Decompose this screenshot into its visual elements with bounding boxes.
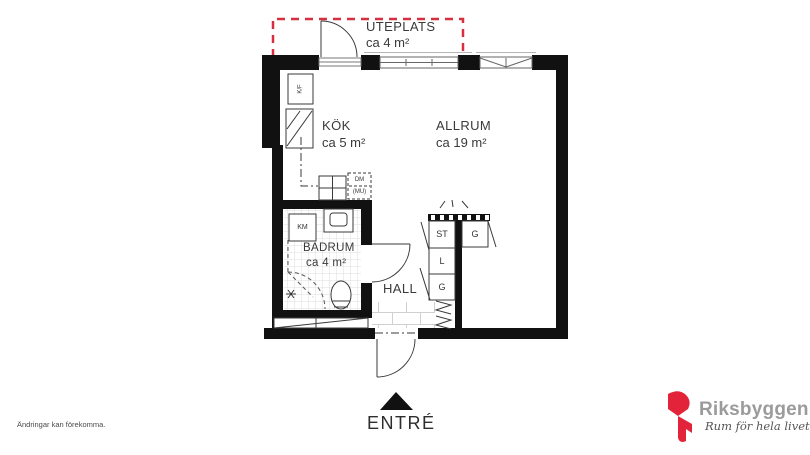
sink-basin	[330, 213, 347, 226]
closet-label-g-right: G	[462, 221, 488, 247]
bathroom-door-swing-arc	[372, 244, 410, 282]
closet-label-l: L	[429, 248, 455, 274]
wall-right	[556, 55, 568, 339]
disclaimer-text: Ändringar kan förekomma.	[17, 421, 105, 429]
balcony-door	[319, 21, 361, 66]
fixture-label-dishwasher: DM	[348, 174, 371, 186]
entrance-arrow-icon	[380, 392, 413, 410]
floorplan-page: UTEPLATS ca 4 m² KÖK ca 5 m² ALLRUM ca 1…	[0, 0, 810, 455]
windows	[364, 53, 536, 69]
closet-door-ajar-1	[421, 222, 429, 250]
fixture-label-fridge-freezer: K/F	[286, 77, 316, 102]
wall-kitchen-bathroom	[272, 200, 372, 209]
riksbyggen-logo-icon	[668, 391, 692, 442]
entry-door-swing-arc	[377, 339, 415, 377]
wall-bottom-left	[264, 328, 375, 339]
closet-open-tick-2	[452, 200, 453, 207]
wall-top-pier-1	[361, 55, 380, 70]
room-label-badrum: BADRUM	[303, 243, 355, 255]
logo-tagline: Rum för hela livet	[705, 421, 810, 433]
room-area-kok: ca 5 m²	[322, 136, 365, 149]
balcony-door-swing-arc	[321, 21, 357, 57]
closet-label-st: ST	[429, 221, 455, 248]
room-area-badrum: ca 4 m²	[306, 258, 346, 270]
closet-open-tick-1	[440, 201, 445, 208]
room-label-allrum: ALLRUM	[436, 119, 491, 132]
entrance-label: ENTRÉ	[367, 414, 436, 432]
toilet	[331, 281, 351, 309]
wall-left-upper	[262, 55, 280, 148]
wall-closet-divider	[455, 220, 462, 328]
wall-bathroom-right-upper	[361, 209, 372, 245]
wall-top-pier-2	[458, 55, 480, 70]
wall-bottom-right	[418, 328, 568, 339]
closet-label-g-left: G	[429, 274, 455, 300]
closet-fold-symbol-2	[436, 316, 451, 329]
room-label-kok: KÖK	[322, 119, 351, 132]
room-label-hall: HALL	[383, 282, 417, 295]
fixture-label-dishwasher-note: (MU)	[348, 186, 371, 198]
closet-door-ajar-3	[488, 221, 496, 247]
floorplan-drawing	[0, 0, 810, 455]
room-label-uteplats: UTEPLATS	[366, 20, 435, 33]
logo-wordmark: Riksbyggen	[699, 400, 809, 419]
hall-tile-floor	[372, 302, 435, 328]
wall-left-lower	[272, 145, 283, 339]
closet-fold-symbol-1	[436, 301, 451, 314]
shaft-niche	[274, 318, 368, 328]
room-area-allrum: ca 19 m²	[436, 136, 487, 149]
closet-open-tick-3	[462, 201, 468, 208]
wall-bathroom-bottom	[272, 310, 372, 318]
room-area-uteplats: ca 4 m²	[366, 36, 409, 49]
entry-door	[375, 333, 418, 377]
fixture-label-washing-machine: KM	[289, 214, 316, 241]
